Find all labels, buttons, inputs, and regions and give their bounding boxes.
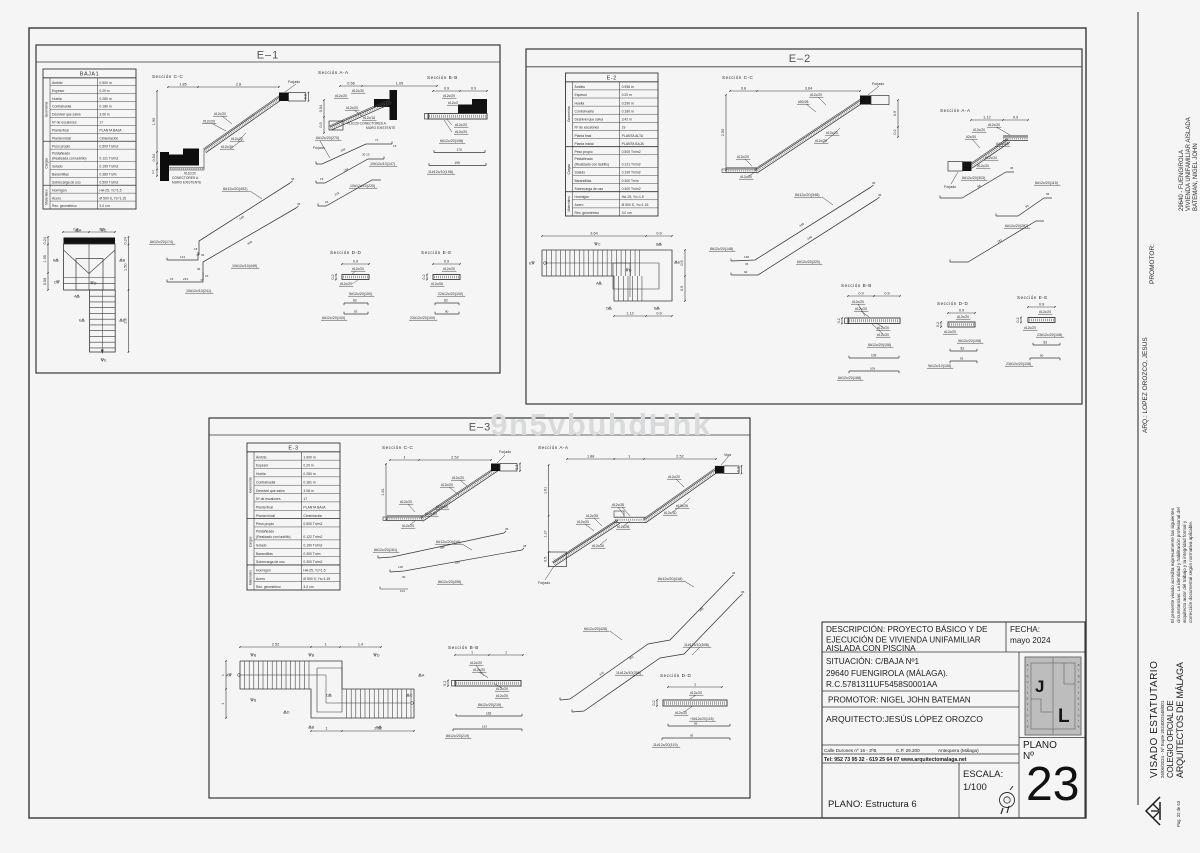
svg-text:0.300 Tn/m: 0.300 Tn/m bbox=[303, 552, 320, 556]
svg-text:#12c/20: #12c/20 bbox=[1039, 310, 1051, 314]
svg-text:1: 1 bbox=[325, 726, 327, 730]
svg-text:t: t bbox=[1027, 691, 1028, 695]
svg-text:0.9: 0.9 bbox=[858, 291, 863, 295]
svg-text:#12c/2: #12c/2 bbox=[448, 101, 458, 105]
svg-text:11#12c/10(508): 11#12c/10(508) bbox=[684, 643, 709, 647]
svg-text:BAJA1: BAJA1 bbox=[80, 72, 99, 78]
svg-text:1.12: 1.12 bbox=[983, 115, 990, 119]
svg-text:EJECUCIÓN DE VIVIENDA UNIFAMIL: EJECUCIÓN DE VIVIENDA UNIFAMILIAR bbox=[826, 635, 981, 645]
svg-text:Sección C-C: Sección C-C bbox=[152, 74, 183, 79]
svg-text:Sobrecarga de uso: Sobrecarga de uso bbox=[52, 180, 81, 184]
svg-text:CONECTORES A: CONECTORES A bbox=[172, 176, 199, 180]
svg-text:Materiales: Materiales bbox=[44, 189, 48, 205]
svg-text:Desnivel que salva: Desnivel que salva bbox=[256, 489, 285, 493]
svg-text:a: a bbox=[1078, 725, 1080, 729]
svg-text:E–1: E–1 bbox=[257, 50, 280, 62]
svg-text:#12c/20: #12c/20 bbox=[402, 524, 414, 528]
svg-text:36: 36 bbox=[505, 527, 509, 531]
svg-text:Sección A-A: Sección A-A bbox=[940, 108, 971, 113]
svg-text:(Realizada con ladrillo): (Realizada con ladrillo) bbox=[52, 157, 87, 161]
svg-text:Sección D-D: Sección D-D bbox=[330, 250, 361, 255]
svg-text:u: u bbox=[1027, 680, 1029, 684]
svg-text:Huella: Huella bbox=[575, 101, 585, 105]
svg-text:83: 83 bbox=[444, 299, 448, 303]
svg-text:6#12c/20(418): 6#12c/20(418) bbox=[658, 577, 683, 581]
svg-text:SITUACIÓN: C/BAJA Nº1: SITUACIÓN: C/BAJA Nº1 bbox=[826, 656, 920, 666]
svg-text:30: 30 bbox=[402, 575, 406, 579]
svg-text:6#12c/20(270): 6#12c/20(270) bbox=[316, 136, 339, 140]
svg-text:3.42 m: 3.42 m bbox=[622, 118, 633, 122]
svg-text:B: B bbox=[656, 243, 659, 247]
svg-text:MURO EXISTENTE: MURO EXISTENTE bbox=[366, 126, 396, 130]
svg-text:18: 18 bbox=[194, 247, 198, 251]
svg-text:409: 409 bbox=[246, 240, 253, 246]
svg-text:95: 95 bbox=[694, 722, 698, 726]
svg-text:143: 143 bbox=[180, 255, 185, 259]
svg-text:Barandillas: Barandillas bbox=[256, 552, 273, 556]
svg-text:Peso propio: Peso propio bbox=[52, 144, 70, 148]
svg-text:B: B bbox=[123, 259, 126, 263]
svg-text:19: 19 bbox=[622, 126, 626, 130]
svg-text:Planta inicial: Planta inicial bbox=[256, 514, 275, 518]
svg-text:0.956 m: 0.956 m bbox=[622, 85, 634, 89]
svg-text:0.300 Tn/m: 0.300 Tn/m bbox=[622, 179, 639, 183]
svg-text:Geometría: Geometría bbox=[44, 102, 48, 118]
svg-text:15: 15 bbox=[325, 200, 329, 204]
svg-text:Cargas: Cargas bbox=[44, 158, 48, 169]
svg-text:Sobrecarga de uso: Sobrecarga de uso bbox=[575, 187, 604, 191]
svg-text:DESCRIPCIÓN: PROYECTO BÁSICO Y: DESCRIPCIÓN: PROYECTO BÁSICO Y DE bbox=[826, 624, 988, 634]
svg-text:29640 - FUENGIROLA: 29640 - FUENGIROLA bbox=[1179, 150, 1185, 211]
svg-text:Forjado: Forjado bbox=[872, 82, 884, 86]
svg-text:1.85: 1.85 bbox=[179, 82, 186, 86]
svg-text:Desnivel que salva: Desnivel que salva bbox=[575, 118, 604, 122]
svg-text:3.0 cm: 3.0 cm bbox=[99, 204, 109, 208]
svg-text:#12c/20: #12c/20 bbox=[203, 120, 215, 124]
svg-text:Sección B-B: Sección B-B bbox=[841, 283, 872, 288]
svg-text:A: A bbox=[422, 674, 425, 678]
svg-text:(Realizado con ladrillo): (Realizado con ladrillo) bbox=[256, 535, 291, 539]
svg-text:C: C bbox=[104, 229, 107, 233]
svg-text:15: 15 bbox=[205, 274, 209, 278]
svg-text:#12c/20: #12c/20 bbox=[400, 500, 412, 504]
svg-text:A: A bbox=[596, 282, 599, 286]
svg-text:83: 83 bbox=[1044, 341, 1048, 345]
svg-text:Nº de escalones: Nº de escalones bbox=[575, 126, 600, 130]
svg-text:109: 109 bbox=[870, 367, 875, 371]
svg-text:HA-25, Yc=1.5: HA-25, Yc=1.5 bbox=[99, 188, 121, 192]
svg-text:Geometría: Geometría bbox=[567, 106, 571, 122]
svg-text:17: 17 bbox=[99, 121, 103, 125]
svg-text:11#12c/10(356): 11#12c/10(356) bbox=[616, 671, 641, 675]
svg-text:15: 15 bbox=[320, 177, 324, 181]
svg-text:#2c/20: #2c/20 bbox=[966, 135, 976, 139]
svg-text:PROMOTOR: NIGEL JOHN BATEMAN: PROMOTOR: NIGEL JOHN BATEMAN bbox=[828, 696, 971, 705]
svg-text:Sección B-B: Sección B-B bbox=[427, 75, 458, 80]
svg-text:Viga: Viga bbox=[724, 453, 731, 457]
svg-text:0.20 m: 0.20 m bbox=[99, 89, 110, 93]
svg-text:6#12c/20(198): 6#12c/20(198) bbox=[440, 139, 463, 143]
svg-text:2.50: 2.50 bbox=[721, 129, 725, 136]
svg-text:71: 71 bbox=[375, 138, 379, 142]
svg-text:1.88: 1.88 bbox=[587, 454, 594, 458]
svg-text:#12c/20: #12c/20 bbox=[496, 687, 508, 691]
svg-text:#12c/26: #12c/26 bbox=[676, 504, 688, 508]
svg-text:R.C.5781311UF5458S0001AA: R.C.5781311UF5458S0001AA bbox=[826, 680, 938, 689]
svg-text:0.900 m: 0.900 m bbox=[99, 81, 111, 85]
svg-text:0.500 Tn/m2: 0.500 Tn/m2 bbox=[303, 522, 322, 526]
svg-text:15: 15 bbox=[393, 144, 397, 148]
svg-text:36: 36 bbox=[872, 181, 876, 185]
svg-text:circunstancias: La identidad y: circunstancias: La identidad y habilitac… bbox=[1176, 507, 1181, 623]
svg-text:Ø 500 S, Ys=1.15: Ø 500 S, Ys=1.15 bbox=[622, 203, 649, 207]
svg-text:Desnivel que salva: Desnivel que salva bbox=[52, 113, 81, 117]
svg-text:Pag. 32 de 63: Pag. 32 de 63 bbox=[1176, 800, 1181, 827]
svg-text:3.08 m: 3.08 m bbox=[303, 489, 314, 493]
svg-text:0.290 m: 0.290 m bbox=[622, 101, 634, 105]
svg-text:#12c/20: #12c/20 bbox=[455, 123, 467, 127]
svg-text:FECHA:: FECHA: bbox=[1010, 625, 1040, 634]
svg-text:C: C bbox=[326, 694, 329, 698]
svg-text:398: 398 bbox=[698, 606, 705, 612]
svg-text:#12c/20: #12c/20 bbox=[496, 694, 508, 698]
svg-text:HA-25, Yc=1.5: HA-25, Yc=1.5 bbox=[303, 568, 325, 572]
svg-text:248: 248 bbox=[340, 147, 347, 153]
svg-text:#12c/20: #12c/20 bbox=[988, 123, 1000, 127]
svg-text:VIVIENDA UNIFAMILIAR AISLADA: VIVIENDA UNIFAMILIAR AISLADA bbox=[1186, 117, 1192, 211]
svg-text:0.20 m: 0.20 m bbox=[622, 93, 633, 97]
svg-text:Cargas: Cargas bbox=[567, 164, 571, 175]
svg-text:0.54: 0.54 bbox=[319, 105, 323, 112]
svg-text:3.0 cm: 3.0 cm bbox=[303, 585, 313, 589]
svg-text:0.20 m: 0.20 m bbox=[303, 464, 314, 468]
svg-text:PLANTA ALTA: PLANTA ALTA bbox=[622, 134, 644, 138]
svg-text:3.64: 3.64 bbox=[805, 86, 812, 90]
svg-text:23#12c/20(108): 23#12c/20(108) bbox=[1037, 333, 1062, 337]
svg-text:#12c/20: #12c/20 bbox=[352, 267, 364, 271]
svg-text:PROMOTOR:: PROMOTOR: bbox=[1149, 244, 1156, 284]
svg-text:0.3: 0.3 bbox=[737, 467, 741, 472]
svg-text:23: 23 bbox=[1026, 758, 1079, 811]
svg-text:1.27: 1.27 bbox=[544, 530, 548, 537]
svg-text:1.61: 1.61 bbox=[544, 487, 548, 494]
svg-text:0.300 Tn/m2: 0.300 Tn/m2 bbox=[622, 187, 641, 191]
svg-text:Solado: Solado bbox=[575, 171, 586, 175]
svg-text:t: t bbox=[1078, 708, 1079, 712]
svg-text:Tel: 952 73 95 32 - 619 25 64: Tel: 952 73 95 32 - 619 25 64 07 bbox=[824, 757, 900, 763]
svg-text:Materiales: Materiales bbox=[567, 196, 571, 212]
svg-text:Cimentación: Cimentación bbox=[303, 514, 322, 518]
svg-text:0.9: 0.9 bbox=[471, 86, 476, 90]
svg-text:E-3: E-3 bbox=[288, 446, 298, 452]
svg-text:0.122 Tn/m2: 0.122 Tn/m2 bbox=[303, 535, 322, 539]
svg-text:#12c/28: #12c/28 bbox=[586, 514, 598, 518]
svg-text:1: 1 bbox=[628, 454, 630, 458]
svg-text:E–3: E–3 bbox=[469, 422, 492, 434]
svg-text:95: 95 bbox=[690, 734, 694, 738]
svg-text:36: 36 bbox=[745, 262, 749, 266]
svg-text:AISLADA CON PISCINA: AISLADA CON PISCINA bbox=[826, 644, 916, 653]
svg-text:3.0 cm: 3.0 cm bbox=[622, 211, 632, 215]
svg-text:10#12c/10(241): 10#12c/10(241) bbox=[186, 289, 211, 293]
svg-text:0.54: 0.54 bbox=[152, 154, 156, 161]
svg-text:#12c/20: #12c/20 bbox=[740, 175, 752, 179]
svg-text:#12c/1D: #12c/1D bbox=[664, 511, 677, 515]
svg-text:Acero: Acero bbox=[256, 577, 265, 581]
svg-text:1.05: 1.05 bbox=[396, 81, 403, 85]
svg-text:6#12c/20(161): 6#12c/20(161) bbox=[374, 548, 397, 552]
svg-text:Planta final: Planta final bbox=[575, 134, 592, 138]
svg-text:q: q bbox=[1078, 674, 1080, 678]
svg-text:1.90: 1.90 bbox=[152, 118, 156, 125]
svg-text:Planta final: Planta final bbox=[52, 128, 69, 132]
svg-text:6#12c/20(303): 6#12c/20(303) bbox=[962, 176, 985, 180]
svg-text:Sobrecarga de uso: Sobrecarga de uso bbox=[256, 560, 285, 564]
svg-text:Ámbito: Ámbito bbox=[52, 81, 63, 85]
svg-text:ESCALA:: ESCALA: bbox=[963, 769, 1003, 780]
svg-text:Sección E-E: Sección E-E bbox=[1017, 295, 1048, 300]
svg-text:0.24: 0.24 bbox=[124, 237, 128, 244]
svg-text:ARQUITECTO:JESÚS LÓPEZ OROZCO: ARQUITECTO:JESÚS LÓPEZ OROZCO bbox=[826, 714, 983, 724]
svg-text:Huella: Huella bbox=[52, 97, 62, 101]
svg-text:8#12c/20(498): 8#12c/20(498) bbox=[438, 580, 461, 584]
svg-text:6#12c/20(148): 6#12c/20(148) bbox=[710, 247, 733, 251]
svg-text:ARQ.: LOPEZ OROZCO, JESUS: ARQ.: LOPEZ OROZCO, JESUS bbox=[1142, 337, 1149, 433]
svg-text:17: 17 bbox=[303, 497, 307, 501]
svg-text:www.arquitectomalaga.net: www.arquitectomalaga.net bbox=[900, 757, 967, 763]
svg-text:El presente visado acredita ex: El presente visado acredita expresamente… bbox=[1170, 507, 1175, 623]
svg-text:arquitecto autor del trabajo y: arquitecto autor del trabajo y la integr… bbox=[1182, 520, 1187, 623]
svg-text:Hormigón: Hormigón bbox=[256, 568, 271, 572]
svg-text:#12c/20: #12c/20 bbox=[470, 661, 482, 665]
svg-text:11#12c/20(119): 11#12c/20(119) bbox=[653, 743, 678, 747]
svg-text:#12c/20: #12c/20 bbox=[855, 307, 867, 311]
svg-text:#12c/20: #12c/20 bbox=[737, 155, 749, 159]
svg-text:Forjado: Forjado bbox=[288, 80, 300, 84]
svg-text:0.2: 0.2 bbox=[331, 274, 335, 279]
svg-text:#12c/20: #12c/20 bbox=[214, 112, 226, 116]
svg-text:Sección A-A: Sección A-A bbox=[538, 445, 569, 450]
svg-text:a: a bbox=[1078, 663, 1080, 667]
svg-text:#12c/20: #12c/20 bbox=[668, 475, 680, 479]
svg-text:0.56: 0.56 bbox=[347, 81, 354, 85]
svg-text:PLANO: Estructura 6: PLANO: Estructura 6 bbox=[828, 799, 917, 810]
svg-text:#12c/20: #12c/20 bbox=[441, 483, 453, 487]
svg-text:0.5: 0.5 bbox=[319, 122, 323, 127]
svg-text:0.2: 0.2 bbox=[422, 274, 426, 279]
svg-text:6#12c/20(219): 6#12c/20(219) bbox=[478, 703, 501, 707]
svg-text:0.190 Tn/m2: 0.190 Tn/m2 bbox=[99, 165, 118, 169]
svg-text:#12c/20: #12c/20 bbox=[352, 89, 364, 93]
svg-text:8#12c/20(219): 8#12c/20(219) bbox=[446, 734, 469, 738]
svg-text:Sección C-C: Sección C-C bbox=[722, 75, 753, 80]
svg-text:0.500 Tn/m2: 0.500 Tn/m2 bbox=[622, 150, 641, 154]
svg-text:Sección A-A: Sección A-A bbox=[318, 70, 349, 75]
svg-text:101: 101 bbox=[400, 589, 405, 593]
svg-text:(Realizado con ladrillo): (Realizado con ladrillo) bbox=[575, 162, 610, 166]
svg-text:Acero: Acero bbox=[52, 196, 61, 200]
svg-text:Ø 500 S, Ys=1.15: Ø 500 S, Ys=1.15 bbox=[99, 196, 126, 200]
svg-text:Nº de escalones: Nº de escalones bbox=[256, 497, 281, 501]
svg-text:29640 FUENGIROLA (MÁLAGA).: 29640 FUENGIROLA (MÁLAGA). bbox=[826, 668, 948, 678]
svg-text:1.000 m: 1.000 m bbox=[303, 455, 315, 459]
svg-text:Peldañeado: Peldañeado bbox=[256, 529, 274, 533]
svg-text:Peso propio: Peso propio bbox=[256, 522, 274, 526]
svg-text:83: 83 bbox=[960, 357, 964, 361]
svg-text:83: 83 bbox=[961, 347, 965, 351]
svg-text:L: L bbox=[1058, 706, 1070, 727]
svg-text:1.05: 1.05 bbox=[43, 255, 47, 262]
svg-text:+0#12c/20(118): +0#12c/20(118) bbox=[690, 717, 714, 721]
svg-text:0.280 m: 0.280 m bbox=[303, 472, 315, 476]
svg-text:0.9: 0.9 bbox=[656, 231, 661, 235]
svg-text:COLEGIO OFICIAL DE: COLEGIO OFICIAL DE bbox=[1166, 701, 1175, 778]
svg-text:6#12c/20(416): 6#12c/20(416) bbox=[436, 540, 461, 544]
svg-text:#12c/20 CONECTORES A: #12c/20 CONECTORES A bbox=[347, 122, 387, 126]
svg-text:Barandillas: Barandillas bbox=[575, 179, 592, 183]
svg-text:Sección B-B: Sección B-B bbox=[448, 645, 479, 650]
svg-text:0.24: 0.24 bbox=[43, 237, 47, 244]
svg-text:D: D bbox=[287, 711, 290, 715]
svg-text:Peldañeado: Peldañeado bbox=[575, 157, 593, 161]
svg-text:a: a bbox=[1027, 663, 1029, 667]
svg-text:0.2: 0.2 bbox=[936, 322, 940, 327]
svg-text:J: J bbox=[1035, 677, 1044, 696]
svg-text:0.500 Tn/m2: 0.500 Tn/m2 bbox=[99, 144, 118, 148]
svg-text:83: 83 bbox=[353, 299, 357, 303]
svg-text:#12c/20: #12c/20 bbox=[443, 267, 455, 271]
svg-text:2.8: 2.8 bbox=[236, 82, 241, 86]
svg-text:118: 118 bbox=[398, 565, 403, 569]
svg-text:1: 1 bbox=[221, 674, 225, 676]
svg-text:#12c/20: #12c/20 bbox=[340, 282, 352, 286]
svg-text:2.52: 2.52 bbox=[451, 455, 458, 459]
svg-text:6#12c/20(492): 6#12c/20(492) bbox=[223, 187, 248, 191]
svg-text:#12c/20: #12c/20 bbox=[443, 94, 455, 98]
svg-text:Sección C-C: Sección C-C bbox=[382, 445, 413, 450]
svg-text:Planta inicial: Planta inicial bbox=[575, 142, 594, 146]
svg-text:#12c/20: #12c/20 bbox=[452, 476, 464, 480]
svg-text:0.500 Tn/m2: 0.500 Tn/m2 bbox=[99, 180, 118, 184]
svg-text:#12c/06: #12c/06 bbox=[431, 282, 443, 286]
svg-text:#12c/20: #12c/20 bbox=[184, 172, 196, 176]
svg-text:Planta inicial: Planta inicial bbox=[52, 136, 71, 140]
svg-text:0.9: 0.9 bbox=[656, 311, 661, 315]
svg-text:corrección documental según no: corrección documental según normativa ap… bbox=[1188, 521, 1193, 623]
svg-text:u: u bbox=[1027, 713, 1029, 717]
svg-text:#12c/20: #12c/20 bbox=[944, 330, 956, 334]
svg-text:0.3: 0.3 bbox=[515, 465, 519, 470]
svg-text:#12c/20: #12c/20 bbox=[852, 300, 864, 304]
svg-text:0.2: 0.2 bbox=[443, 681, 447, 686]
svg-text:#12c/20: #12c/20 bbox=[675, 711, 687, 715]
svg-text:#12c/2B: #12c/2B bbox=[617, 525, 630, 529]
svg-text:D: D bbox=[377, 654, 380, 658]
svg-text:#12c/20: #12c/20 bbox=[473, 668, 485, 672]
svg-text:36: 36 bbox=[878, 193, 882, 197]
svg-text:Peldañeado: Peldañeado bbox=[52, 151, 70, 155]
svg-text:1/100: 1/100 bbox=[963, 782, 987, 793]
svg-text:134: 134 bbox=[343, 167, 350, 173]
svg-text:83: 83 bbox=[354, 310, 358, 314]
svg-text:36: 36 bbox=[732, 571, 736, 575]
svg-text:23#12c/20(100): 23#12c/20(100) bbox=[410, 316, 435, 320]
svg-text:#12c/20: #12c/20 bbox=[436, 505, 448, 509]
svg-text:a: a bbox=[1027, 725, 1029, 729]
svg-text:Peso propio: Peso propio bbox=[575, 150, 593, 154]
svg-text:6#12c/20(320): 6#12c/20(320) bbox=[797, 260, 820, 264]
svg-text:Ø 500 S, Ys=1.15: Ø 500 S, Ys=1.15 bbox=[303, 577, 330, 581]
svg-text:q: q bbox=[1027, 674, 1029, 678]
svg-text:Sección E-E: Sección E-E bbox=[421, 250, 452, 255]
svg-text:Calle Durones nº 16 - 3ºB: Calle Durones nº 16 - 3ºB bbox=[824, 748, 876, 753]
svg-text:MURO EXISTENTE: MURO EXISTENTE bbox=[172, 181, 202, 185]
svg-text:1.4: 1.4 bbox=[358, 642, 363, 646]
svg-text:0.9: 0.9 bbox=[444, 259, 449, 263]
svg-text:0.3: 0.3 bbox=[304, 94, 308, 99]
svg-text:Barandillas: Barandillas bbox=[52, 172, 69, 176]
svg-text:Ámbito: Ámbito bbox=[575, 85, 586, 89]
svg-text:6#12c/20(428): 6#12c/20(428) bbox=[584, 627, 607, 631]
svg-text:6#12c/20(348): 6#12c/20(348) bbox=[795, 193, 820, 197]
svg-text:287: 287 bbox=[997, 238, 1004, 244]
svg-text:0.180 m: 0.180 m bbox=[622, 109, 634, 113]
svg-text:0.2: 0.2 bbox=[652, 700, 656, 705]
svg-text:448: 448 bbox=[798, 222, 805, 228]
svg-text:Antequera (Málaga): Antequera (Málaga) bbox=[938, 748, 979, 753]
svg-text:D: D bbox=[606, 307, 609, 311]
svg-text:Rec. geométrico: Rec. geométrico bbox=[52, 204, 77, 208]
svg-text:Materiales: Materiales bbox=[248, 570, 252, 586]
svg-text:6#12c/20(108): 6#12c/20(108) bbox=[868, 343, 891, 347]
svg-text:10#12c/10(449): 10#12c/10(449) bbox=[232, 264, 257, 268]
svg-text:C: C bbox=[598, 243, 601, 247]
svg-text:#12c/20: #12c/20 bbox=[810, 93, 822, 97]
svg-text:1: 1 bbox=[221, 702, 225, 704]
svg-text:0.190 Tn/m2: 0.190 Tn/m2 bbox=[303, 543, 322, 547]
svg-text:B: B bbox=[654, 307, 657, 311]
svg-text:0.2: 0.2 bbox=[151, 170, 155, 174]
svg-text:163: 163 bbox=[486, 712, 492, 716]
svg-text:t: t bbox=[1027, 708, 1028, 712]
svg-text:0.56: 0.56 bbox=[43, 278, 47, 285]
svg-text:D: D bbox=[94, 282, 97, 286]
svg-text:30 15: 30 15 bbox=[362, 153, 370, 157]
svg-text:15: 15 bbox=[170, 277, 174, 281]
svg-text:B: B bbox=[254, 699, 257, 703]
svg-text:B: B bbox=[312, 654, 315, 658]
svg-text:0.9: 0.9 bbox=[680, 260, 684, 265]
svg-text:B: B bbox=[254, 654, 257, 658]
svg-text:36: 36 bbox=[291, 177, 295, 181]
svg-text:Planta final: Planta final bbox=[256, 505, 273, 509]
svg-text:u: u bbox=[1078, 713, 1080, 717]
svg-text:0.121 Tn/m2: 0.121 Tn/m2 bbox=[99, 157, 118, 161]
svg-text:0.190 Tn/m2: 0.190 Tn/m2 bbox=[622, 171, 641, 175]
svg-text:11#12c/10(198): 11#12c/10(198) bbox=[428, 170, 453, 174]
svg-text:213: 213 bbox=[183, 277, 188, 281]
svg-text:Forjado: Forjado bbox=[538, 581, 550, 585]
svg-text:Geometría: Geometría bbox=[248, 477, 252, 493]
svg-text:C.P. 29.200: C.P. 29.200 bbox=[896, 748, 920, 753]
svg-text:#12c/20: #12c/20 bbox=[877, 333, 889, 337]
svg-text:Rec. geométrico: Rec. geométrico bbox=[256, 585, 281, 589]
svg-text:Contrahuella: Contrahuella bbox=[256, 480, 275, 484]
svg-text:#12c/20: #12c/20 bbox=[577, 520, 589, 524]
svg-text:#12c/26: #12c/26 bbox=[592, 544, 604, 548]
svg-text:Solado: Solado bbox=[256, 543, 267, 547]
svg-text:Cargas: Cargas bbox=[248, 536, 252, 547]
